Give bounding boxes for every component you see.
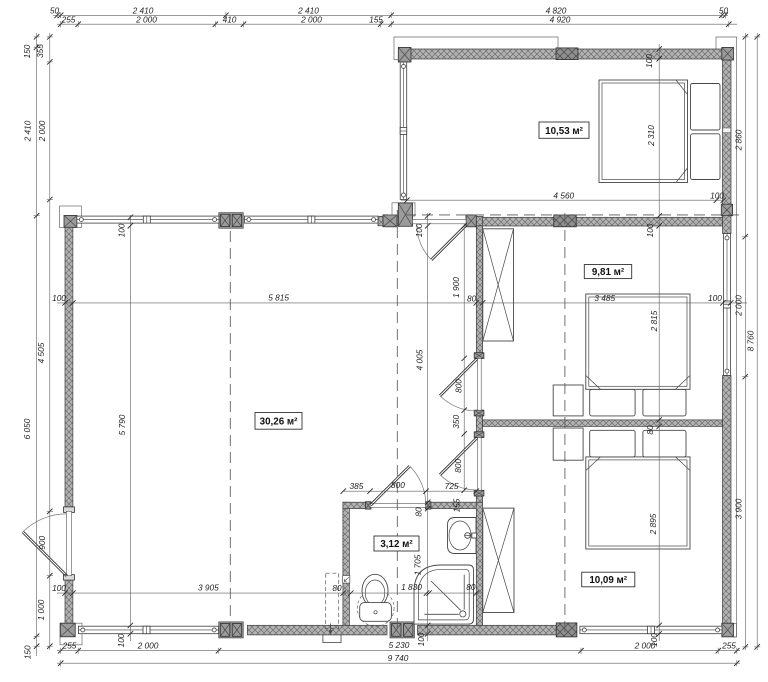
svg-text:150: 150 [22, 44, 32, 58]
svg-text:2 860: 2 860 [733, 129, 743, 151]
svg-text:3 905: 3 905 [198, 583, 219, 593]
svg-text:5 790: 5 790 [117, 414, 127, 435]
svg-text:100: 100 [117, 223, 127, 237]
svg-text:2 000: 2 000 [37, 120, 47, 142]
svg-text:2 000: 2 000 [300, 14, 322, 24]
svg-text:30,26 м²: 30,26 м² [260, 417, 298, 428]
svg-text:100: 100 [708, 293, 722, 303]
svg-text:100: 100 [414, 223, 424, 237]
svg-text:80: 80 [466, 582, 476, 592]
svg-text:80: 80 [467, 293, 477, 303]
svg-text:255: 255 [61, 14, 76, 24]
svg-text:410: 410 [223, 14, 237, 24]
svg-text:10,53 м²: 10,53 м² [545, 126, 583, 137]
svg-text:2 000: 2 000 [734, 295, 744, 317]
svg-text:800: 800 [453, 458, 463, 472]
svg-text:900: 900 [37, 535, 47, 549]
svg-text:5 815: 5 815 [268, 293, 289, 303]
svg-text:800: 800 [391, 480, 405, 490]
svg-text:100: 100 [649, 633, 659, 647]
svg-text:255: 255 [721, 641, 736, 651]
svg-text:100: 100 [116, 633, 126, 647]
svg-text:725: 725 [445, 481, 459, 491]
svg-text:80: 80 [332, 583, 342, 593]
svg-text:4 005: 4 005 [414, 349, 424, 370]
svg-text:350: 350 [451, 414, 461, 428]
svg-text:50: 50 [50, 5, 60, 15]
svg-text:1 900: 1 900 [451, 277, 461, 298]
svg-text:100: 100 [416, 632, 426, 646]
svg-text:80: 80 [413, 507, 423, 517]
svg-text:2 410: 2 410 [22, 120, 32, 142]
svg-text:6 050: 6 050 [22, 418, 32, 439]
svg-text:3 485: 3 485 [594, 293, 615, 303]
svg-text:2 815: 2 815 [649, 310, 659, 332]
svg-text:9 740: 9 740 [388, 653, 409, 663]
svg-text:9,81 м²: 9,81 м² [592, 267, 625, 278]
svg-text:1 705: 1 705 [413, 554, 423, 575]
svg-text:155: 155 [369, 14, 383, 24]
svg-text:3,12 м²: 3,12 м² [380, 539, 413, 550]
svg-text:2 310: 2 310 [646, 125, 656, 147]
svg-text:4 560: 4 560 [553, 190, 574, 200]
svg-text:5 230: 5 230 [389, 640, 410, 650]
svg-text:100: 100 [52, 583, 66, 593]
svg-text:155: 155 [451, 498, 461, 512]
svg-text:3 900: 3 900 [734, 498, 744, 519]
svg-text:80: 80 [645, 425, 655, 435]
svg-text:800: 800 [454, 379, 464, 393]
svg-text:2 895: 2 895 [648, 513, 658, 535]
svg-text:4 920: 4 920 [550, 14, 571, 24]
svg-text:100: 100 [710, 190, 724, 200]
svg-text:355: 355 [35, 44, 45, 58]
svg-text:2 000: 2 000 [137, 641, 159, 651]
svg-text:100: 100 [644, 54, 654, 68]
svg-text:1 830: 1 830 [401, 582, 422, 592]
svg-text:8 760: 8 760 [745, 330, 755, 351]
svg-text:100: 100 [645, 223, 655, 237]
svg-text:10,09 м²: 10,09 м² [589, 575, 627, 586]
svg-text:50: 50 [719, 5, 729, 15]
svg-text:100: 100 [52, 293, 66, 303]
svg-text:2 000: 2 000 [135, 14, 157, 24]
svg-text:4 505: 4 505 [36, 342, 46, 363]
svg-text:255: 255 [62, 641, 77, 651]
svg-text:150: 150 [22, 645, 32, 659]
svg-text:1 000: 1 000 [36, 599, 46, 620]
svg-text:385: 385 [349, 481, 363, 491]
